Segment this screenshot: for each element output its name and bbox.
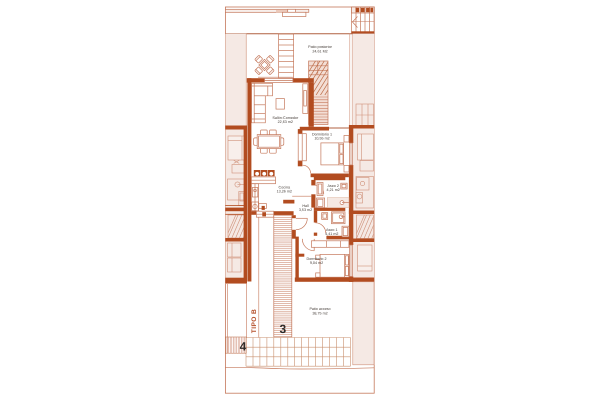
svg-text:Patio acceso: Patio acceso [309,307,330,311]
svg-text:3,53 m2: 3,53 m2 [299,208,312,212]
svg-text:13,26 m2: 13,26 m2 [277,190,292,194]
svg-text:4,41 m2: 4,41 m2 [325,232,338,236]
svg-text:24,61 M2: 24,61 M2 [312,49,327,53]
svg-text:38,75 m2: 38,75 m2 [312,312,327,316]
svg-text:22,63 m2: 22,63 m2 [278,120,293,124]
svg-text:4: 4 [240,340,247,354]
svg-text:4,21 m2: 4,21 m2 [327,188,340,192]
svg-text:TIPO B: TIPO B [251,309,258,333]
svg-text:3: 3 [279,322,286,336]
svg-text:10,55 m2: 10,55 m2 [314,136,329,140]
svg-text:9,04 m2: 9,04 m2 [310,261,323,265]
